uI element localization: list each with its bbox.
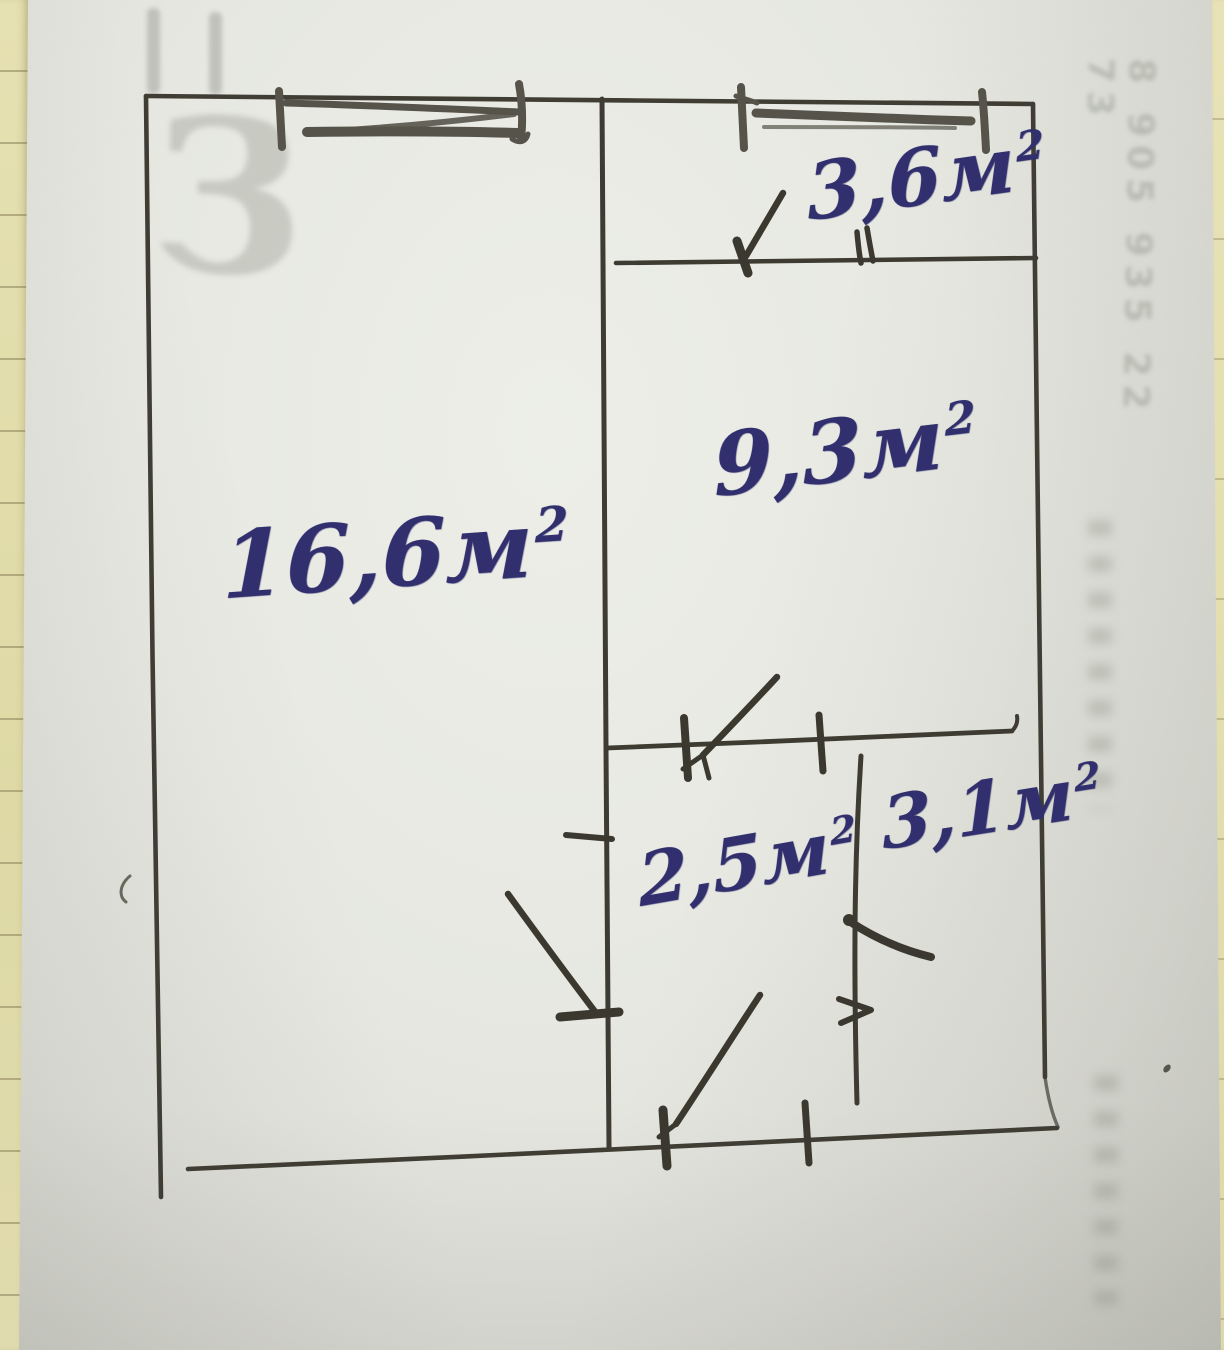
wall-middle-horizontal bbox=[607, 731, 1012, 748]
door-top-jamb1 bbox=[737, 241, 748, 273]
door-left-leaf bbox=[508, 894, 596, 1013]
wall-right-tail bbox=[1045, 1077, 1058, 1127]
window-left-bar2 bbox=[307, 131, 517, 133]
door-bath-swing bbox=[852, 923, 931, 957]
window-left-bar bbox=[286, 103, 521, 112]
door-left-jamb-top bbox=[566, 835, 612, 839]
area-superscript: 2 bbox=[829, 806, 858, 855]
area-superscript: 2 bbox=[1015, 119, 1045, 171]
area-value: 9,3 bbox=[712, 398, 864, 518]
wall-left bbox=[146, 96, 161, 1197]
window-right-bar bbox=[756, 113, 971, 121]
door-middle-jamb2 bbox=[819, 715, 823, 771]
door-top-leaf bbox=[746, 193, 783, 256]
window-left-jamb-b bbox=[519, 84, 522, 140]
wall-middle-hook bbox=[1012, 716, 1017, 731]
interior-walls bbox=[602, 99, 1036, 1147]
door-entry-jamb2 bbox=[805, 1103, 809, 1163]
room-left-area-label: 16,6м2 bbox=[222, 496, 568, 612]
area-value: 16,6 bbox=[222, 496, 446, 620]
area-unit: м bbox=[860, 388, 945, 499]
area-superscript: 2 bbox=[944, 390, 977, 447]
door-entry-leaf bbox=[676, 995, 760, 1124]
pen-squiggle bbox=[121, 876, 130, 902]
floor-plan-photo: З 8 905 935 22 73 bbox=[0, 0, 1224, 1350]
area-unit: м bbox=[759, 804, 832, 901]
area-unit: м bbox=[1003, 751, 1075, 847]
door-top-jamb2b bbox=[867, 228, 873, 261]
wall-bottom bbox=[188, 1128, 1057, 1169]
area-superscript: 2 bbox=[535, 495, 568, 553]
window-left-jamb-a bbox=[279, 91, 282, 147]
area-value: 3,6 bbox=[805, 129, 944, 239]
wall-right bbox=[1033, 104, 1045, 1077]
window-right-bar2 bbox=[764, 127, 955, 128]
door-marks bbox=[121, 193, 931, 1166]
door-top-jamb2a bbox=[857, 232, 861, 263]
wall-top-right-room bbox=[616, 258, 1036, 263]
door-left-jamb-bottom bbox=[560, 1012, 619, 1017]
door-entry-jamb1 bbox=[663, 1110, 667, 1166]
wall-interior-vertical bbox=[602, 99, 609, 1147]
area-superscript: 2 bbox=[1073, 752, 1101, 800]
floor-plan-drawing bbox=[0, 0, 1224, 1350]
door-middle-arrow-b bbox=[703, 755, 709, 778]
area-unit: м bbox=[939, 119, 1017, 221]
area-unit: м bbox=[446, 490, 533, 604]
